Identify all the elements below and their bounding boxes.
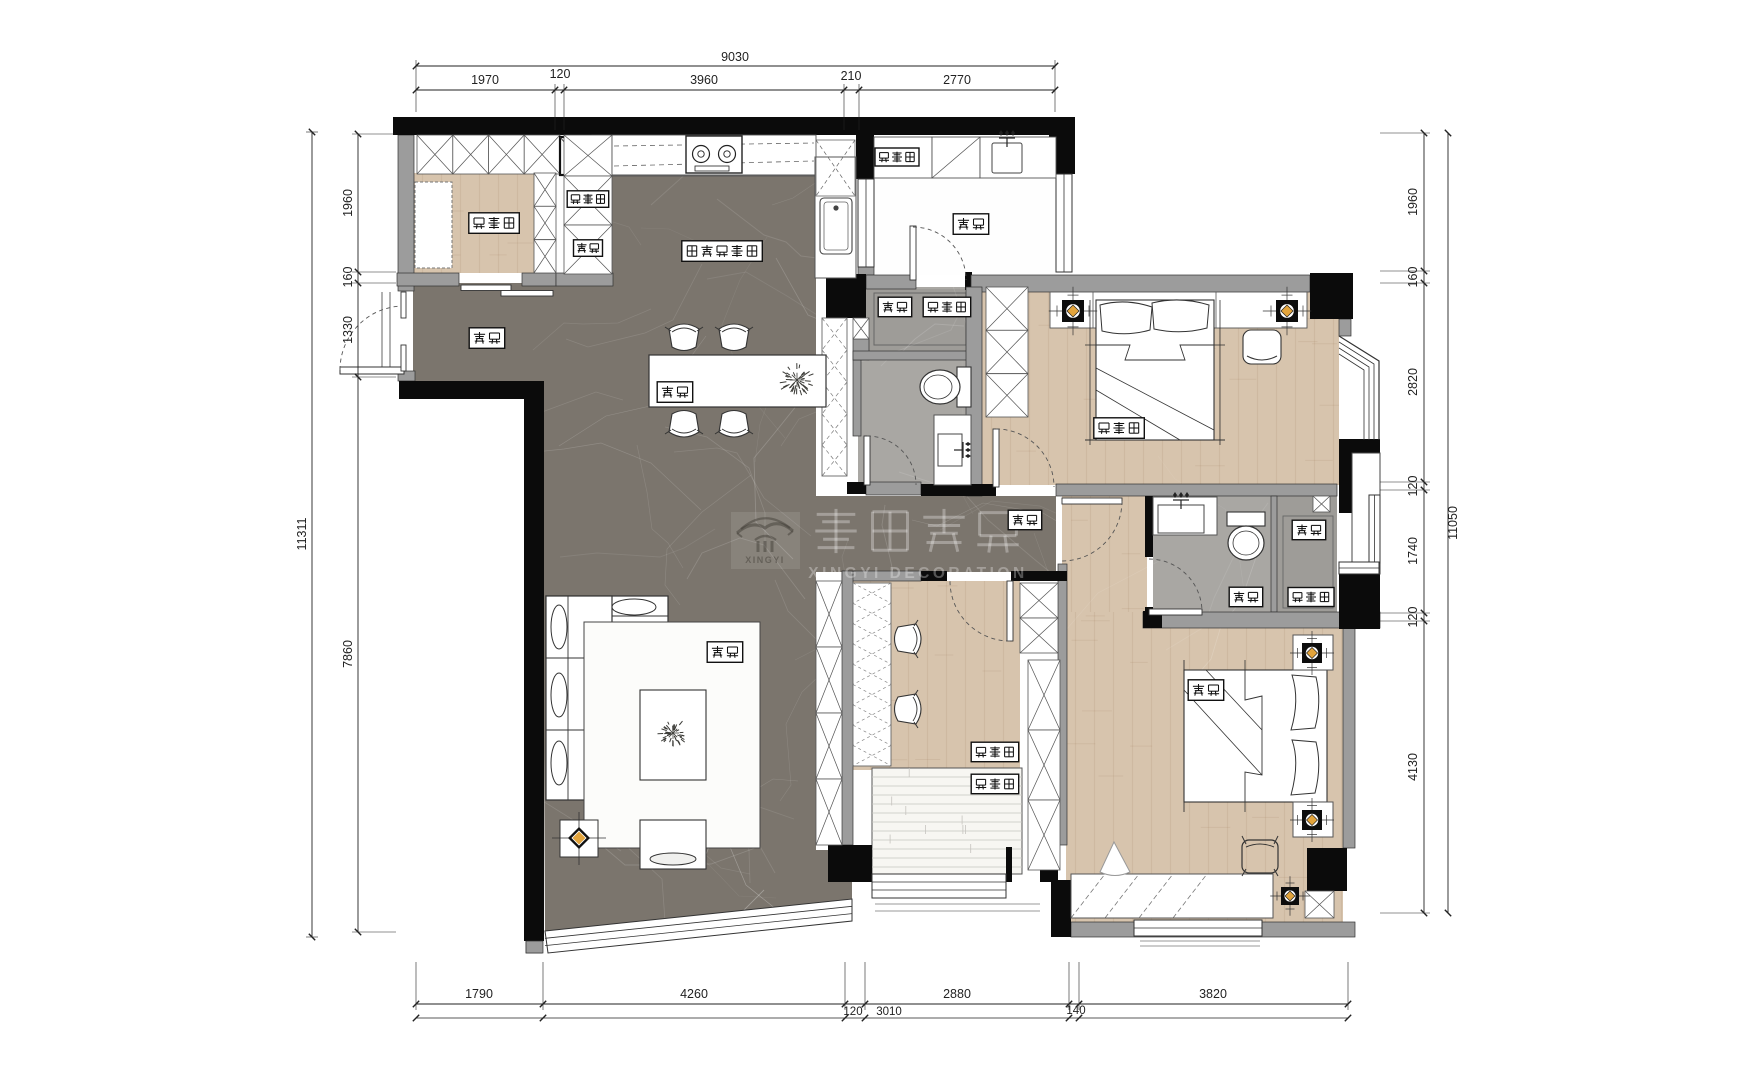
svg-text:1790: 1790	[465, 987, 493, 1001]
svg-text:2820: 2820	[1406, 368, 1420, 396]
svg-text:1960: 1960	[1406, 188, 1420, 216]
svg-text:120: 120	[1406, 476, 1420, 497]
svg-text:4130: 4130	[1406, 753, 1420, 781]
svg-text:1960: 1960	[341, 189, 355, 217]
svg-text:120: 120	[843, 1006, 862, 1018]
svg-text:160: 160	[341, 267, 355, 288]
svg-text:4260: 4260	[680, 987, 708, 1001]
svg-text:120: 120	[550, 67, 571, 81]
svg-text:120: 120	[1406, 607, 1420, 628]
svg-text:1740: 1740	[1406, 537, 1420, 565]
svg-text:7860: 7860	[341, 640, 355, 668]
svg-text:3010: 3010	[876, 1006, 902, 1018]
svg-text:11311: 11311	[295, 518, 309, 551]
svg-text:XINGYI: XINGYI	[745, 555, 785, 565]
svg-text:3960: 3960	[690, 73, 718, 87]
svg-text:1970: 1970	[471, 73, 499, 87]
svg-text:160: 160	[1406, 267, 1420, 288]
svg-text:1330: 1330	[341, 316, 355, 344]
svg-text:XINGYI DECORATION: XINGYI DECORATION	[808, 565, 1027, 582]
svg-text:3820: 3820	[1199, 987, 1227, 1001]
svg-text:2770: 2770	[943, 73, 971, 87]
svg-text:140: 140	[1066, 1005, 1085, 1017]
svg-text:2880: 2880	[943, 987, 971, 1001]
svg-text:210: 210	[841, 69, 862, 83]
svg-text:11050: 11050	[1446, 506, 1460, 540]
svg-text:9030: 9030	[721, 50, 749, 64]
